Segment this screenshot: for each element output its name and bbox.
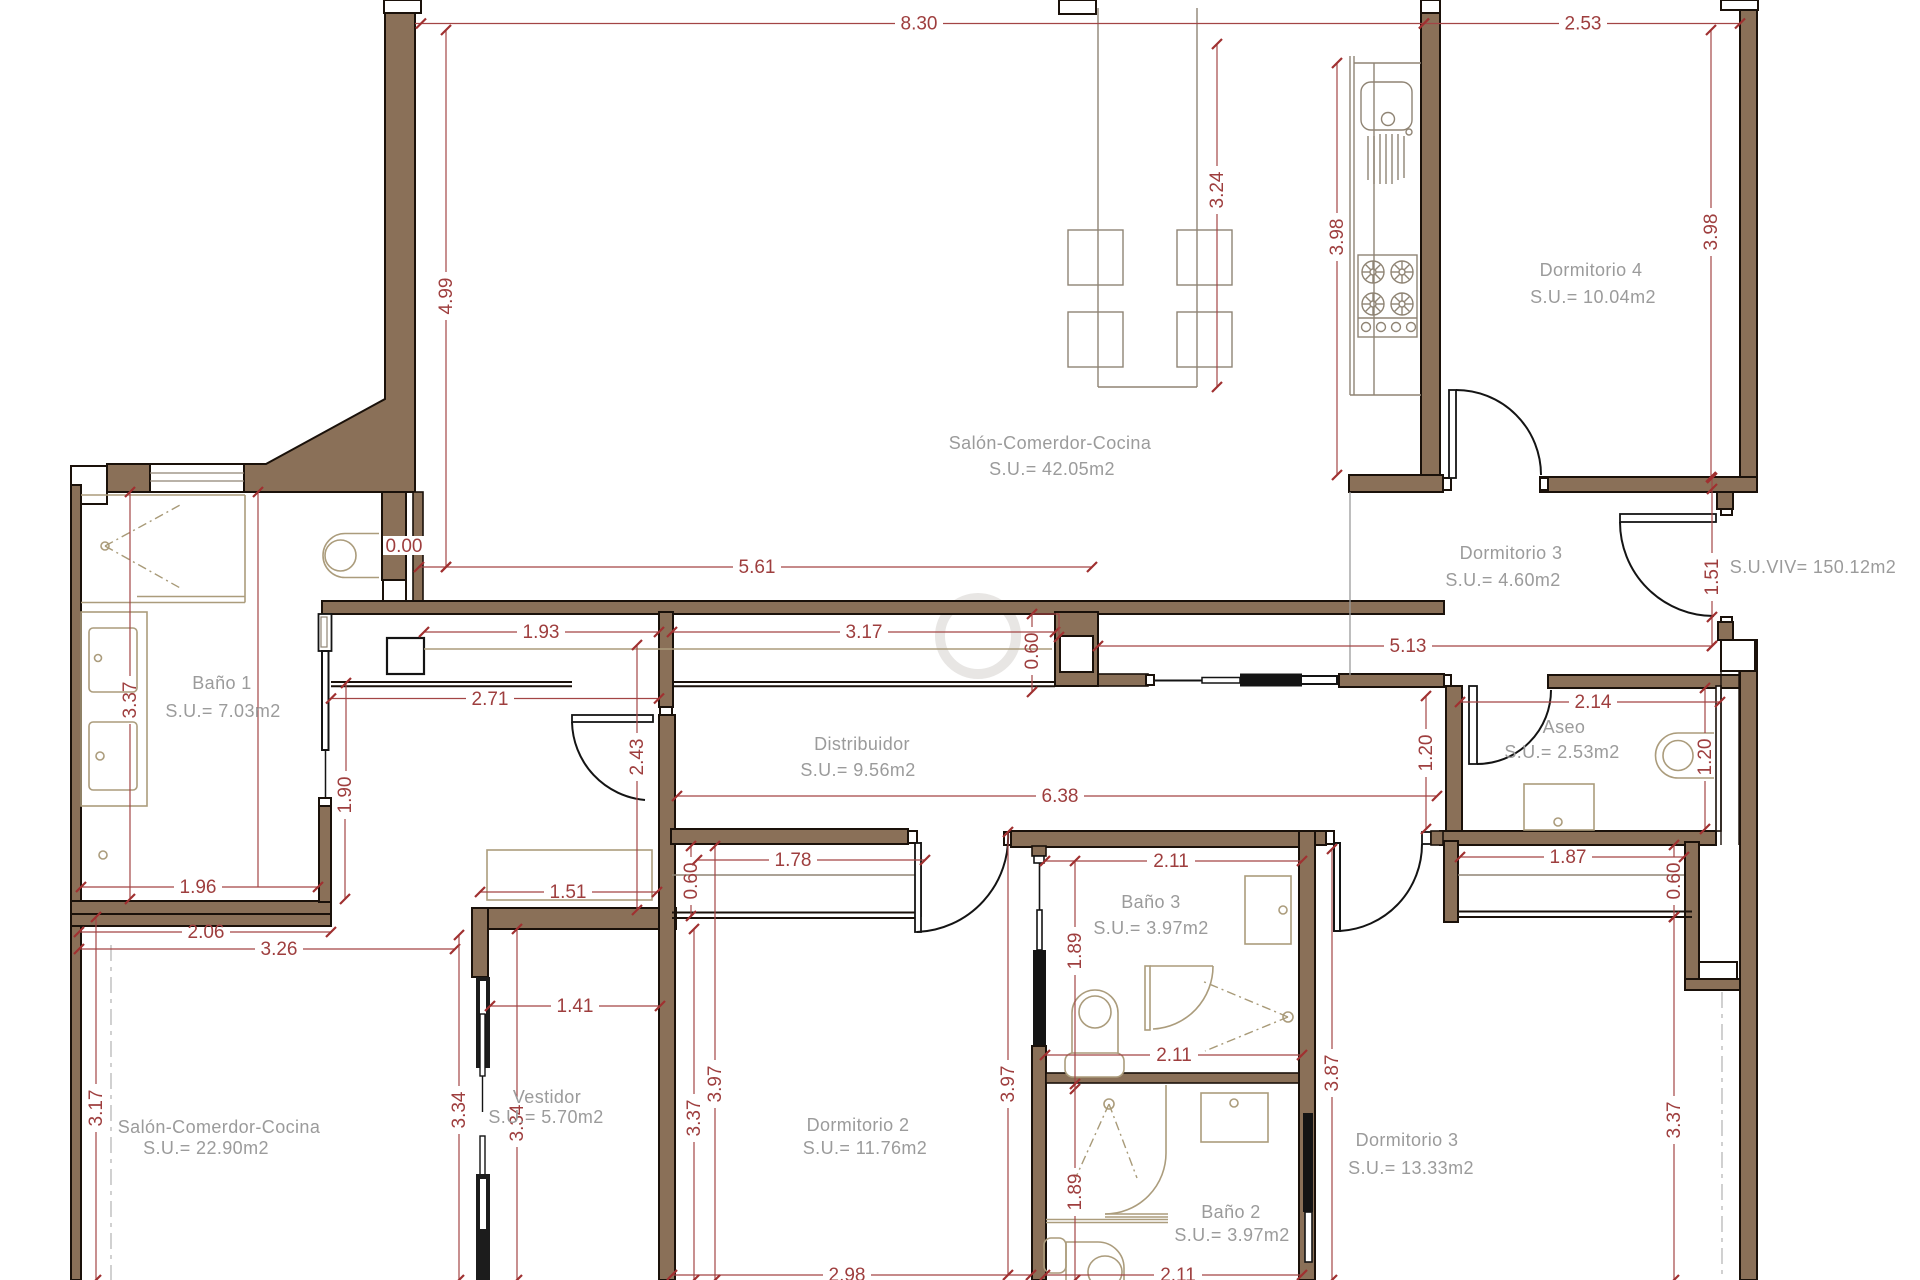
svg-text:3.97: 3.97 (998, 1066, 1019, 1103)
svg-text:Baño 3: Baño 3 (1121, 892, 1180, 912)
svg-text:S.U.= 11.76m2: S.U.= 11.76m2 (803, 1138, 927, 1158)
svg-text:1.51: 1.51 (1702, 559, 1723, 596)
svg-text:2.71: 2.71 (472, 689, 509, 710)
svg-text:2.06: 2.06 (188, 922, 225, 943)
svg-text:1.20: 1.20 (1695, 739, 1716, 776)
svg-text:Dormitorio 2: Dormitorio 2 (807, 1115, 910, 1135)
svg-text:4.99: 4.99 (436, 278, 457, 315)
svg-text:Dormitorio 4: Dormitorio 4 (1540, 260, 1643, 280)
svg-text:S.U.= 22.90m2: S.U.= 22.90m2 (143, 1138, 269, 1158)
svg-text:1.89: 1.89 (1065, 1174, 1086, 1211)
svg-text:3.37: 3.37 (684, 1100, 705, 1137)
svg-text:0.00: 0.00 (386, 536, 423, 557)
svg-text:3.98: 3.98 (1701, 214, 1722, 251)
svg-text:5.13: 5.13 (1390, 636, 1427, 657)
svg-text:3.26: 3.26 (261, 939, 298, 960)
svg-text:3.37: 3.37 (1664, 1102, 1685, 1139)
svg-text:S.U.= 2.53m2: S.U.= 2.53m2 (1504, 742, 1619, 762)
svg-text:1.96: 1.96 (180, 877, 217, 898)
svg-text:Vestidor: Vestidor (513, 1087, 581, 1107)
svg-text:S.U.= 9.56m2: S.U.= 9.56m2 (800, 760, 915, 780)
svg-text:3.34: 3.34 (449, 1091, 470, 1128)
svg-text:Salón-Comerdor-Cocina: Salón-Comerdor-Cocina (949, 433, 1152, 453)
svg-text:2.11: 2.11 (1153, 851, 1189, 872)
svg-text:2.43: 2.43 (627, 739, 648, 776)
svg-text:Dormitorio 3: Dormitorio 3 (1356, 1130, 1459, 1150)
svg-text:1.90: 1.90 (335, 777, 356, 814)
svg-text:3.17: 3.17 (86, 1090, 107, 1127)
svg-text:1.20: 1.20 (1416, 735, 1437, 772)
svg-text:S.U.= 4.60m2: S.U.= 4.60m2 (1445, 570, 1560, 590)
svg-text:2.98: 2.98 (829, 1265, 866, 1280)
svg-text:1.78: 1.78 (775, 850, 812, 871)
svg-text:3.17: 3.17 (846, 622, 883, 643)
svg-text:S.U.= 3.97m2: S.U.= 3.97m2 (1174, 1225, 1289, 1245)
svg-text:3.87: 3.87 (1322, 1055, 1343, 1092)
svg-text:S.U.= 7.03m2: S.U.= 7.03m2 (165, 701, 280, 721)
svg-text:0.60: 0.60 (1022, 633, 1043, 670)
svg-text:Baño 1: Baño 1 (192, 673, 251, 693)
svg-text:2.14: 2.14 (1575, 692, 1612, 713)
svg-text:5.61: 5.61 (739, 557, 776, 578)
svg-text:1.93: 1.93 (523, 622, 560, 643)
svg-text:2.53: 2.53 (1565, 14, 1602, 35)
svg-text:0.60: 0.60 (681, 863, 702, 900)
svg-text:S.U.= 3.97m2: S.U.= 3.97m2 (1093, 918, 1208, 938)
svg-text:3.24: 3.24 (1207, 171, 1228, 208)
svg-text:8.30: 8.30 (901, 14, 938, 35)
svg-text:S.U.VIV= 150.12m2: S.U.VIV= 150.12m2 (1730, 557, 1896, 577)
svg-text:1.51: 1.51 (550, 882, 587, 903)
svg-text:1.41: 1.41 (557, 996, 594, 1017)
svg-text:2.11: 2.11 (1160, 1265, 1196, 1280)
svg-text:3.37: 3.37 (120, 682, 141, 719)
svg-text:S.U.= 13.33m2: S.U.= 13.33m2 (1348, 1158, 1474, 1178)
svg-text:Dormitorio 3: Dormitorio 3 (1460, 543, 1563, 563)
svg-text:S.U.= 42.05m2: S.U.= 42.05m2 (989, 459, 1115, 479)
svg-text:Baño 2: Baño 2 (1201, 1202, 1260, 1222)
svg-text:3.97: 3.97 (705, 1066, 726, 1103)
svg-text:3.98: 3.98 (1327, 219, 1348, 256)
svg-text:Aseo: Aseo (1543, 717, 1586, 737)
svg-text:Salón-Comerdor-Cocina: Salón-Comerdor-Cocina (118, 1117, 321, 1137)
svg-text:S.U.= 5.70m2: S.U.= 5.70m2 (488, 1107, 603, 1127)
svg-text:1.87: 1.87 (1550, 847, 1587, 868)
svg-text:Distribuidor: Distribuidor (814, 734, 910, 754)
svg-text:6.38: 6.38 (1042, 786, 1079, 807)
svg-text:0.60: 0.60 (1664, 863, 1685, 900)
svg-text:1.89: 1.89 (1065, 933, 1086, 970)
svg-text:2.11: 2.11 (1156, 1045, 1192, 1066)
svg-text:S.U.= 10.04m2: S.U.= 10.04m2 (1530, 287, 1656, 307)
